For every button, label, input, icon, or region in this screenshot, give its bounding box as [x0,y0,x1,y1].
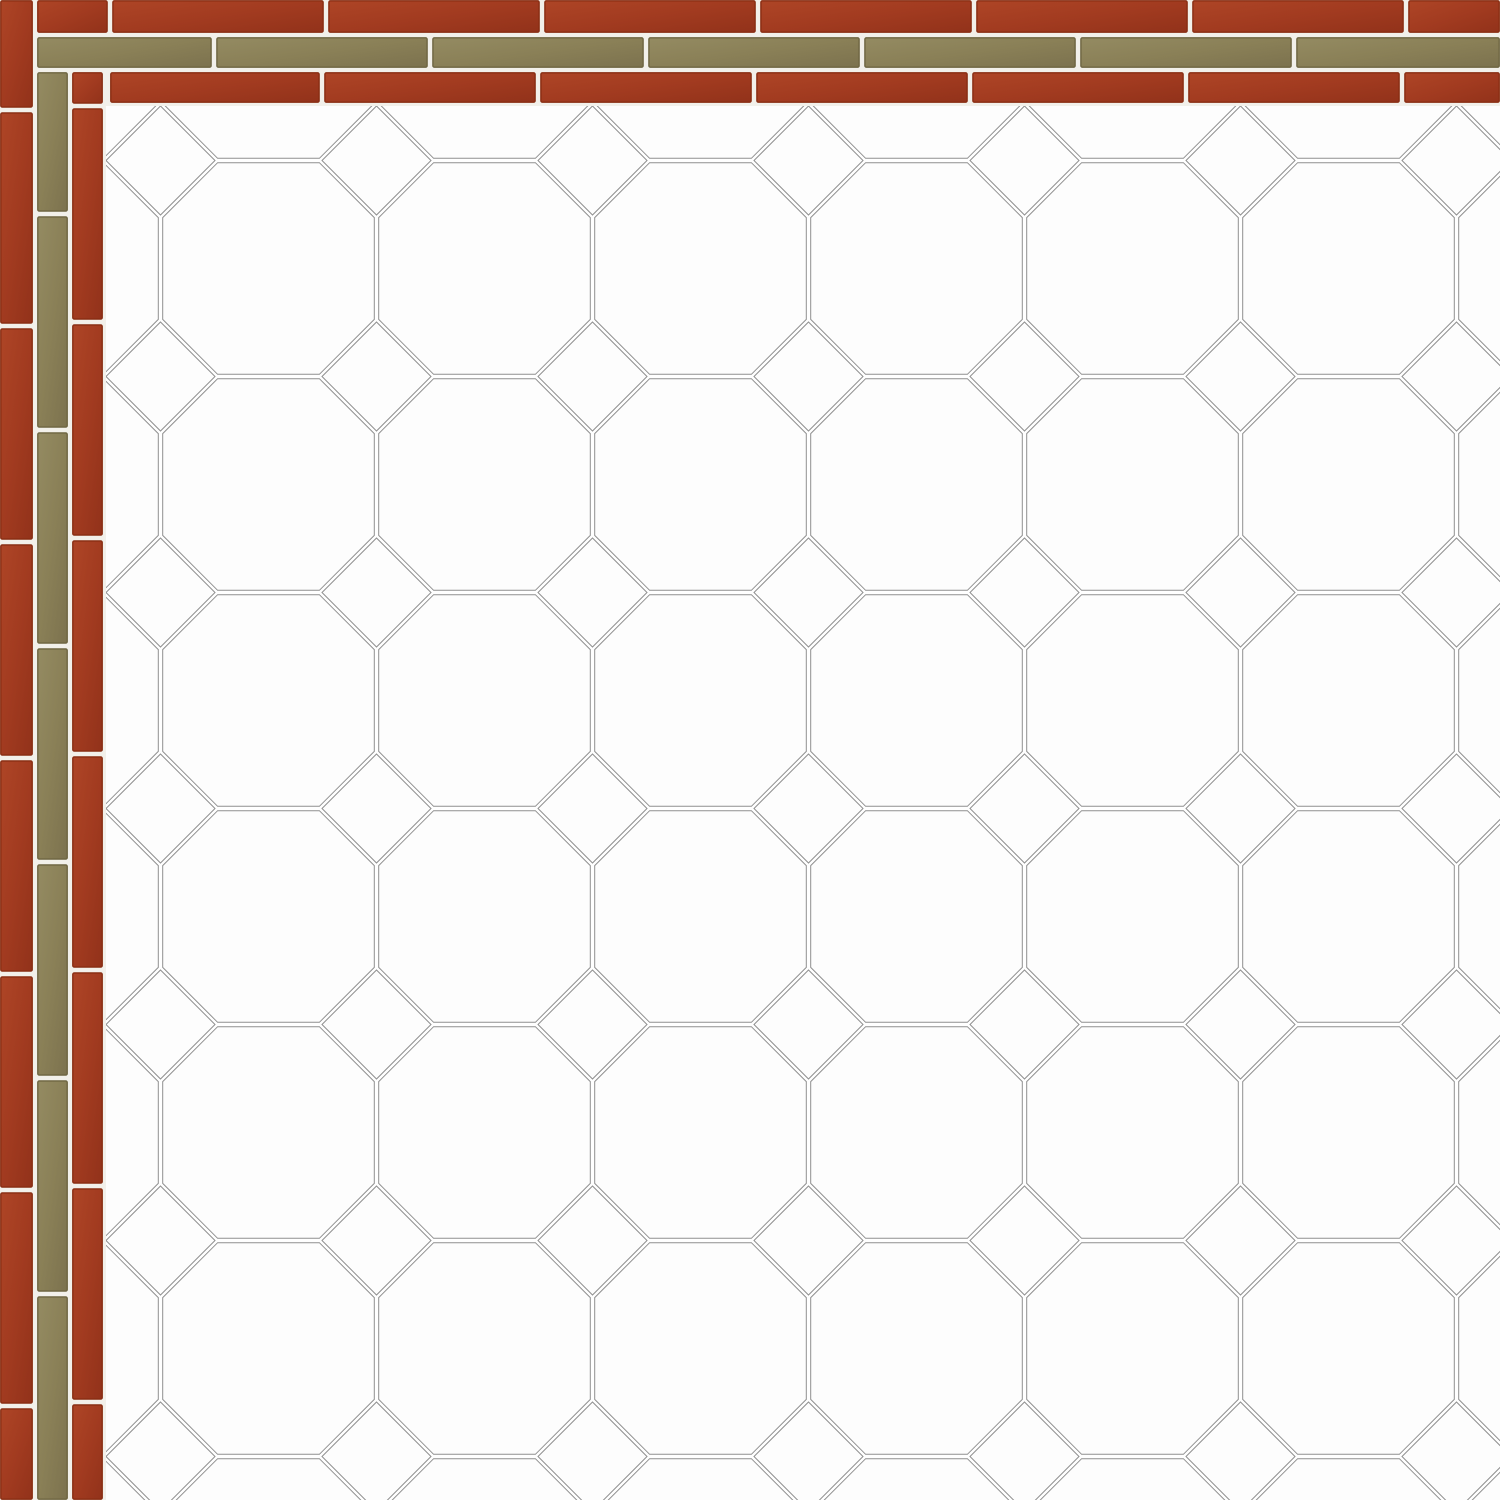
octagon-tile [163,1243,375,1455]
octagon-tile [1243,811,1455,1023]
left-outer-red-col [1,1,32,1499]
border-brick-red [761,1,971,32]
border-brick-red [1,113,32,323]
octagon-tile [595,1243,807,1455]
field-tiles [0,0,1500,1500]
border-brick-olive [38,649,67,859]
top-inner-red-row [111,73,1499,102]
border-brick-red [73,541,102,751]
border-brick-olive [38,38,211,67]
border-brick-red [545,1,755,32]
octagon-tile [595,379,807,591]
border-brick-red [973,73,1183,102]
border-brick-red [1,977,32,1187]
border-brick-red [73,1189,102,1399]
octagon-tile [163,595,375,807]
border-brick-red [38,1,107,32]
border-brick-olive [649,38,859,67]
octagon-tile [163,811,375,1023]
border-brick-red [977,1,1187,32]
border-brick-red [1409,1,1499,32]
border-brick-olive [217,38,427,67]
octagon-tile [379,379,591,591]
octagon-tile [1243,1243,1455,1455]
border-brick-olive [38,217,67,427]
octagon-tile [379,811,591,1023]
octagon-tile [1027,1243,1239,1455]
border-brick-red [1405,73,1499,102]
border-brick-red [73,109,102,319]
border-brick-olive [38,73,67,211]
top-outer-red-row [38,1,1499,32]
octagon-tile [595,595,807,807]
octagon-tile [811,595,1023,807]
octagon-tile [1027,163,1239,375]
border-brick-olive [1081,38,1291,67]
octagon-tile [1243,1027,1455,1239]
octagon-tile [163,163,375,375]
left-inner-red-col [73,73,102,1499]
octagon-tile [811,379,1023,591]
octagon-tile [163,1027,375,1239]
border-brick-olive [38,1081,67,1291]
octagon-tile [379,595,591,807]
border-brick-red [73,1405,102,1499]
octagon-tile [595,163,807,375]
octagon-tile [595,811,807,1023]
border-brick-red [1,329,32,539]
border-brick-red [329,1,539,32]
border-brick-olive [433,38,643,67]
border-brick-red [113,1,323,32]
border-brick-red [1,1193,32,1403]
octagon-tile [1027,595,1239,807]
top-middle-olive-row [38,38,1499,67]
octagon-tile [1027,811,1239,1023]
tile-pattern-canvas [0,0,1500,1500]
octagon-tile [811,1243,1023,1455]
border-brick-red [541,73,751,102]
victorian-tile-pattern-sample [0,0,1500,1500]
octagon-tile [1243,163,1455,375]
octagon-tile [811,163,1023,375]
border-brick-red [73,973,102,1183]
border-brick-red [1,1409,32,1499]
border-brick-olive [38,1297,67,1499]
border-brick-olive [1297,38,1499,67]
border-brick-red [757,73,967,102]
octagon-tile [379,1027,591,1239]
border-brick-red [1189,73,1399,102]
border-brick-red [1,545,32,755]
border-brick-olive [38,865,67,1075]
border-brick-red [325,73,535,102]
border-brick-red [73,325,102,535]
octagon-tile [1027,379,1239,591]
border-brick-red [73,757,102,967]
octagon-tile [811,811,1023,1023]
border-brick-red [1193,1,1403,32]
left-middle-olive-col [38,73,67,1499]
border-brick-olive [38,433,67,643]
octagon-tile [379,163,591,375]
border-brick-olive [865,38,1075,67]
border-brick-red [73,73,102,103]
octagon-tile [1243,379,1455,591]
octagon-tile [1027,1027,1239,1239]
octagon-tile [811,1027,1023,1239]
octagon-tile [1243,595,1455,807]
border-brick-red [1,1,32,107]
octagon-tile [379,1243,591,1455]
border-brick-red [1,761,32,971]
border-brick-red [111,73,319,102]
octagon-tile [595,1027,807,1239]
octagon-tile [163,379,375,591]
